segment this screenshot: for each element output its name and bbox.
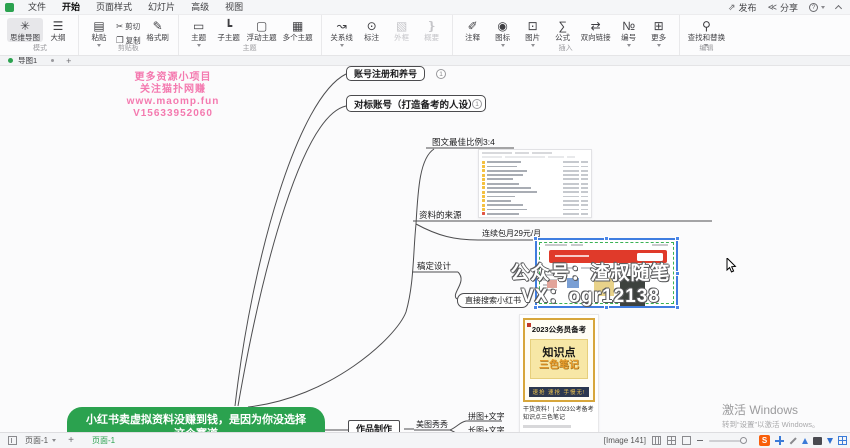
resize-handle[interactable] — [533, 236, 538, 241]
mindmap-mode-button[interactable]: ✳ 思维导图 — [7, 18, 43, 42]
ribbon-group-insert: ✐ 注释 ◉ 图标 ⊡ 图片 ∑ 公式 ⇄ 双向链接 № — [452, 15, 679, 55]
node-material-source[interactable]: 资料的来源 — [419, 209, 462, 221]
tray-pen-icon[interactable] — [790, 437, 797, 444]
grid-view-icon[interactable] — [667, 436, 676, 445]
publish-icon: ⇗ — [728, 2, 736, 13]
find-replace-icon: ⚲ — [702, 19, 711, 33]
help-icon: ? — [809, 3, 818, 12]
more-icon: ⊞ — [654, 19, 664, 33]
tray-plus-icon[interactable] — [775, 436, 784, 445]
folder-icon — [482, 191, 485, 194]
file-list-screenshot[interactable] — [478, 149, 592, 218]
numbering-icon: № — [622, 19, 635, 33]
poster-caption: 干货资料！| 2023公考备考知识点三色笔记 — [523, 407, 597, 422]
tray-grid-icon[interactable] — [838, 436, 847, 445]
relationship-line-button[interactable]: ↝ 关系线 — [327, 18, 357, 47]
search-pill — [637, 253, 663, 261]
subtopic-icon: ┗ — [225, 19, 232, 33]
tab-page-style[interactable]: 页面样式 — [88, 0, 140, 15]
boundary-icon: ▧ — [396, 19, 407, 33]
titlebar-actions: ⇗ 发布 ≪ 分享 ? — [728, 1, 850, 14]
icon-library-icon: ◉ — [497, 19, 507, 33]
status-bar: 页面-1 + 页面-1 [Image 141] S — [0, 432, 850, 448]
node-collage-text[interactable]: 拼图+文字 — [468, 411, 505, 422]
node-meitu[interactable]: 美图秀秀 — [416, 419, 448, 430]
folder-icon — [482, 174, 485, 177]
priority-badge[interactable]: 1 — [436, 69, 446, 79]
node-production[interactable]: 作品制作 — [348, 420, 400, 432]
topic-icon: ▭ — [193, 19, 204, 33]
folder-icon — [482, 182, 485, 185]
pink-watermark: 更多资源小项目 关注猫扑网赚 www.maomp.fun V1563395206… — [123, 72, 223, 120]
fit-view-icon[interactable] — [682, 436, 691, 445]
resize-handle[interactable] — [604, 236, 609, 241]
image-icon: ⊡ — [528, 19, 538, 33]
folder-icon — [482, 208, 485, 211]
folder-icon — [482, 204, 485, 207]
doc-tab-mindmap1[interactable]: 导图1 — [18, 55, 37, 66]
folder-icon — [482, 178, 485, 181]
formula-button[interactable]: ∑ 公式 — [548, 18, 578, 42]
page-selector[interactable]: 页面-1 — [25, 435, 56, 446]
publish-button[interactable]: ⇗ 发布 — [728, 1, 757, 14]
poster-caption-meta — [523, 425, 571, 428]
poster-red-mark — [527, 323, 531, 327]
node-benchmark-account[interactable]: 对标账号（打造备考的人设） — [346, 95, 486, 112]
format-painter-icon: ✎ — [153, 19, 163, 33]
mindmap-canvas[interactable]: 更多资源小项目 关注猫扑网赚 www.maomp.fun V1563395206… — [0, 66, 850, 432]
folder-icon — [482, 195, 485, 198]
chevron-down-icon — [821, 6, 825, 9]
folder-icon — [482, 165, 485, 168]
tray-screenshot-icon[interactable] — [813, 437, 822, 445]
poster-image-2023-exam[interactable]: 2023公务员备考 知识点 三色笔记 速抢 速抢 手慢无! 干货资料！| 202… — [519, 314, 599, 432]
document-tab-bar: 导图1 + — [0, 56, 850, 66]
page-tab-active[interactable]: 页面-1 — [92, 435, 115, 446]
relationship-line-icon: ↝ — [337, 19, 347, 33]
note-button[interactable]: ✐ 注释 — [458, 18, 488, 42]
central-topic[interactable]: 小红书卖虚拟资料没赚到钱，是因为你没选择 这个赛道 — [67, 407, 325, 432]
file-icon — [482, 212, 485, 215]
folder-icon — [482, 169, 485, 172]
format-painter-button[interactable]: ✎ 格式刷 — [143, 18, 173, 42]
tab-file[interactable]: 文件 — [20, 0, 54, 15]
ribbon-group-edit: ⚲ 查找和替换 编辑 — [679, 15, 734, 55]
app-window: 文件 开始 页面样式 幻灯片 高级 视图 ⇗ 发布 ≪ 分享 ? ✳ — [0, 0, 850, 448]
formula-icon: ∑ — [558, 19, 567, 33]
scissors-icon: ✂ — [116, 22, 123, 31]
node-account-register[interactable]: 账号注册和养号 — [346, 66, 425, 81]
poster-banner: 速抢 速抢 手慢无! — [529, 387, 589, 397]
doc-status-icon — [8, 58, 13, 63]
columns-view-icon[interactable] — [652, 436, 661, 445]
add-page-button[interactable]: + — [68, 435, 74, 446]
outline-mode-button[interactable]: ☰ 大纲 — [43, 18, 73, 42]
folder-icon — [482, 186, 485, 189]
ribbon-group-clipboard: ▤ 粘贴 ✂ 剪切 ❐ 复制 ✎ 格式刷 剪贴板 — [78, 15, 178, 55]
system-tray: S — [759, 435, 847, 446]
folder-icon — [482, 199, 485, 202]
tab-view[interactable]: 视图 — [217, 0, 251, 15]
connector-lines — [0, 66, 850, 432]
activate-windows-watermark: 激活 Windows 转到“设置”以激活 Windows。 — [722, 403, 820, 430]
outline-icon: ☰ — [53, 19, 64, 33]
tray-triangle-icon[interactable] — [827, 438, 833, 444]
paste-icon: ▤ — [93, 19, 104, 33]
resize-handle[interactable] — [675, 236, 680, 241]
cut-button[interactable]: ✂ 剪切 — [116, 21, 141, 32]
node-gaoding-design[interactable]: 稿定设计 — [417, 260, 451, 272]
tray-arrow-up-icon[interactable] — [802, 438, 808, 444]
subtopic-button[interactable]: ┗ 子主题 — [214, 18, 244, 42]
share-icon: ≪ — [768, 2, 777, 13]
ribbon-toolbar: ✳ 思维导图 ☰ 大纲 模式 ▤ 粘贴 ✂ 剪切 ❐ — [0, 15, 850, 56]
poster-subhead: 三色笔记 — [539, 360, 579, 372]
modified-dot-icon — [51, 59, 54, 62]
statusbar-right: [Image 141] S — [604, 435, 850, 446]
white-watermark: 公众号：渣叔随笔 VX：ogr12138 — [498, 262, 683, 308]
multiple-topics-button[interactable]: ▦ 多个主题 — [280, 18, 316, 42]
zoom-out-button[interactable] — [697, 440, 703, 442]
multiple-topics-icon: ▦ — [292, 19, 303, 33]
floating-topic-button[interactable]: ▢ 浮动主题 — [244, 18, 280, 42]
node-image-ratio[interactable]: 图文最佳比例3:4 — [432, 136, 495, 148]
help-button[interactable]: ? — [809, 3, 825, 12]
cut-copy-stack: ✂ 剪切 ❐ 复制 — [114, 18, 143, 46]
callout-button[interactable]: ⊙ 标注 — [357, 18, 387, 42]
tab-advanced[interactable]: 高级 — [183, 0, 217, 15]
folder-icon — [482, 161, 485, 164]
page-panel-icon[interactable] — [8, 436, 17, 445]
zoom-slider[interactable] — [709, 440, 745, 442]
add-doc-tab-button[interactable]: + — [66, 56, 71, 66]
image-count-label: [Image 141] — [604, 436, 646, 445]
tab-slides[interactable]: 幻灯片 — [140, 0, 183, 15]
link-icon: ⇄ — [591, 19, 601, 33]
mouse-cursor — [726, 258, 738, 274]
poster-panel: 知识点 三色笔记 — [530, 339, 588, 379]
mindmap-icon: ✳ — [20, 19, 30, 33]
sogou-input-icon[interactable]: S — [759, 435, 770, 446]
share-button[interactable]: ≪ 分享 — [768, 1, 798, 14]
floating-topic-icon: ▢ — [256, 19, 267, 33]
collapse-ribbon-button[interactable] — [835, 4, 842, 11]
zoom-slider-knob[interactable] — [740, 437, 747, 444]
ribbon-group-mode: ✳ 思维导图 ☰ 大纲 模式 — [2, 15, 78, 55]
poster-gold-frame: 2023公务员备考 知识点 三色笔记 速抢 速抢 手慢无! — [523, 318, 595, 402]
note-icon: ✐ — [468, 19, 478, 33]
tab-home[interactable]: 开始 — [54, 0, 88, 15]
app-logo-icon — [5, 3, 14, 12]
summary-icon: ❵ — [427, 19, 437, 33]
chevron-down-icon — [52, 439, 56, 442]
priority-badge[interactable]: 1 — [472, 99, 482, 109]
node-longimg-text[interactable]: 长图+文字 — [468, 425, 505, 432]
chevron-down-icon — [340, 44, 344, 47]
callout-icon: ⊙ — [367, 19, 377, 33]
ribbon-group-topic: ▭ 主题 ┗ 子主题 ▢ 浮动主题 ▦ 多个主题 主题 — [178, 15, 321, 55]
summary-button[interactable]: ❵ 概要 — [417, 18, 447, 42]
boundary-button[interactable]: ▧ 外框 — [387, 18, 417, 42]
menu-bar: 文件 开始 页面样式 幻灯片 高级 视图 ⇗ 发布 ≪ 分享 ? — [0, 0, 850, 15]
bidirectional-link-button[interactable]: ⇄ 双向链接 — [578, 18, 614, 42]
poster-title: 2023公务员备考 — [525, 324, 593, 335]
ribbon-group-elements: ↝ 关系线 ⊙ 标注 ▧ 外框 ❵ 概要 — [321, 15, 452, 55]
poster-headline: 知识点 — [543, 347, 576, 360]
